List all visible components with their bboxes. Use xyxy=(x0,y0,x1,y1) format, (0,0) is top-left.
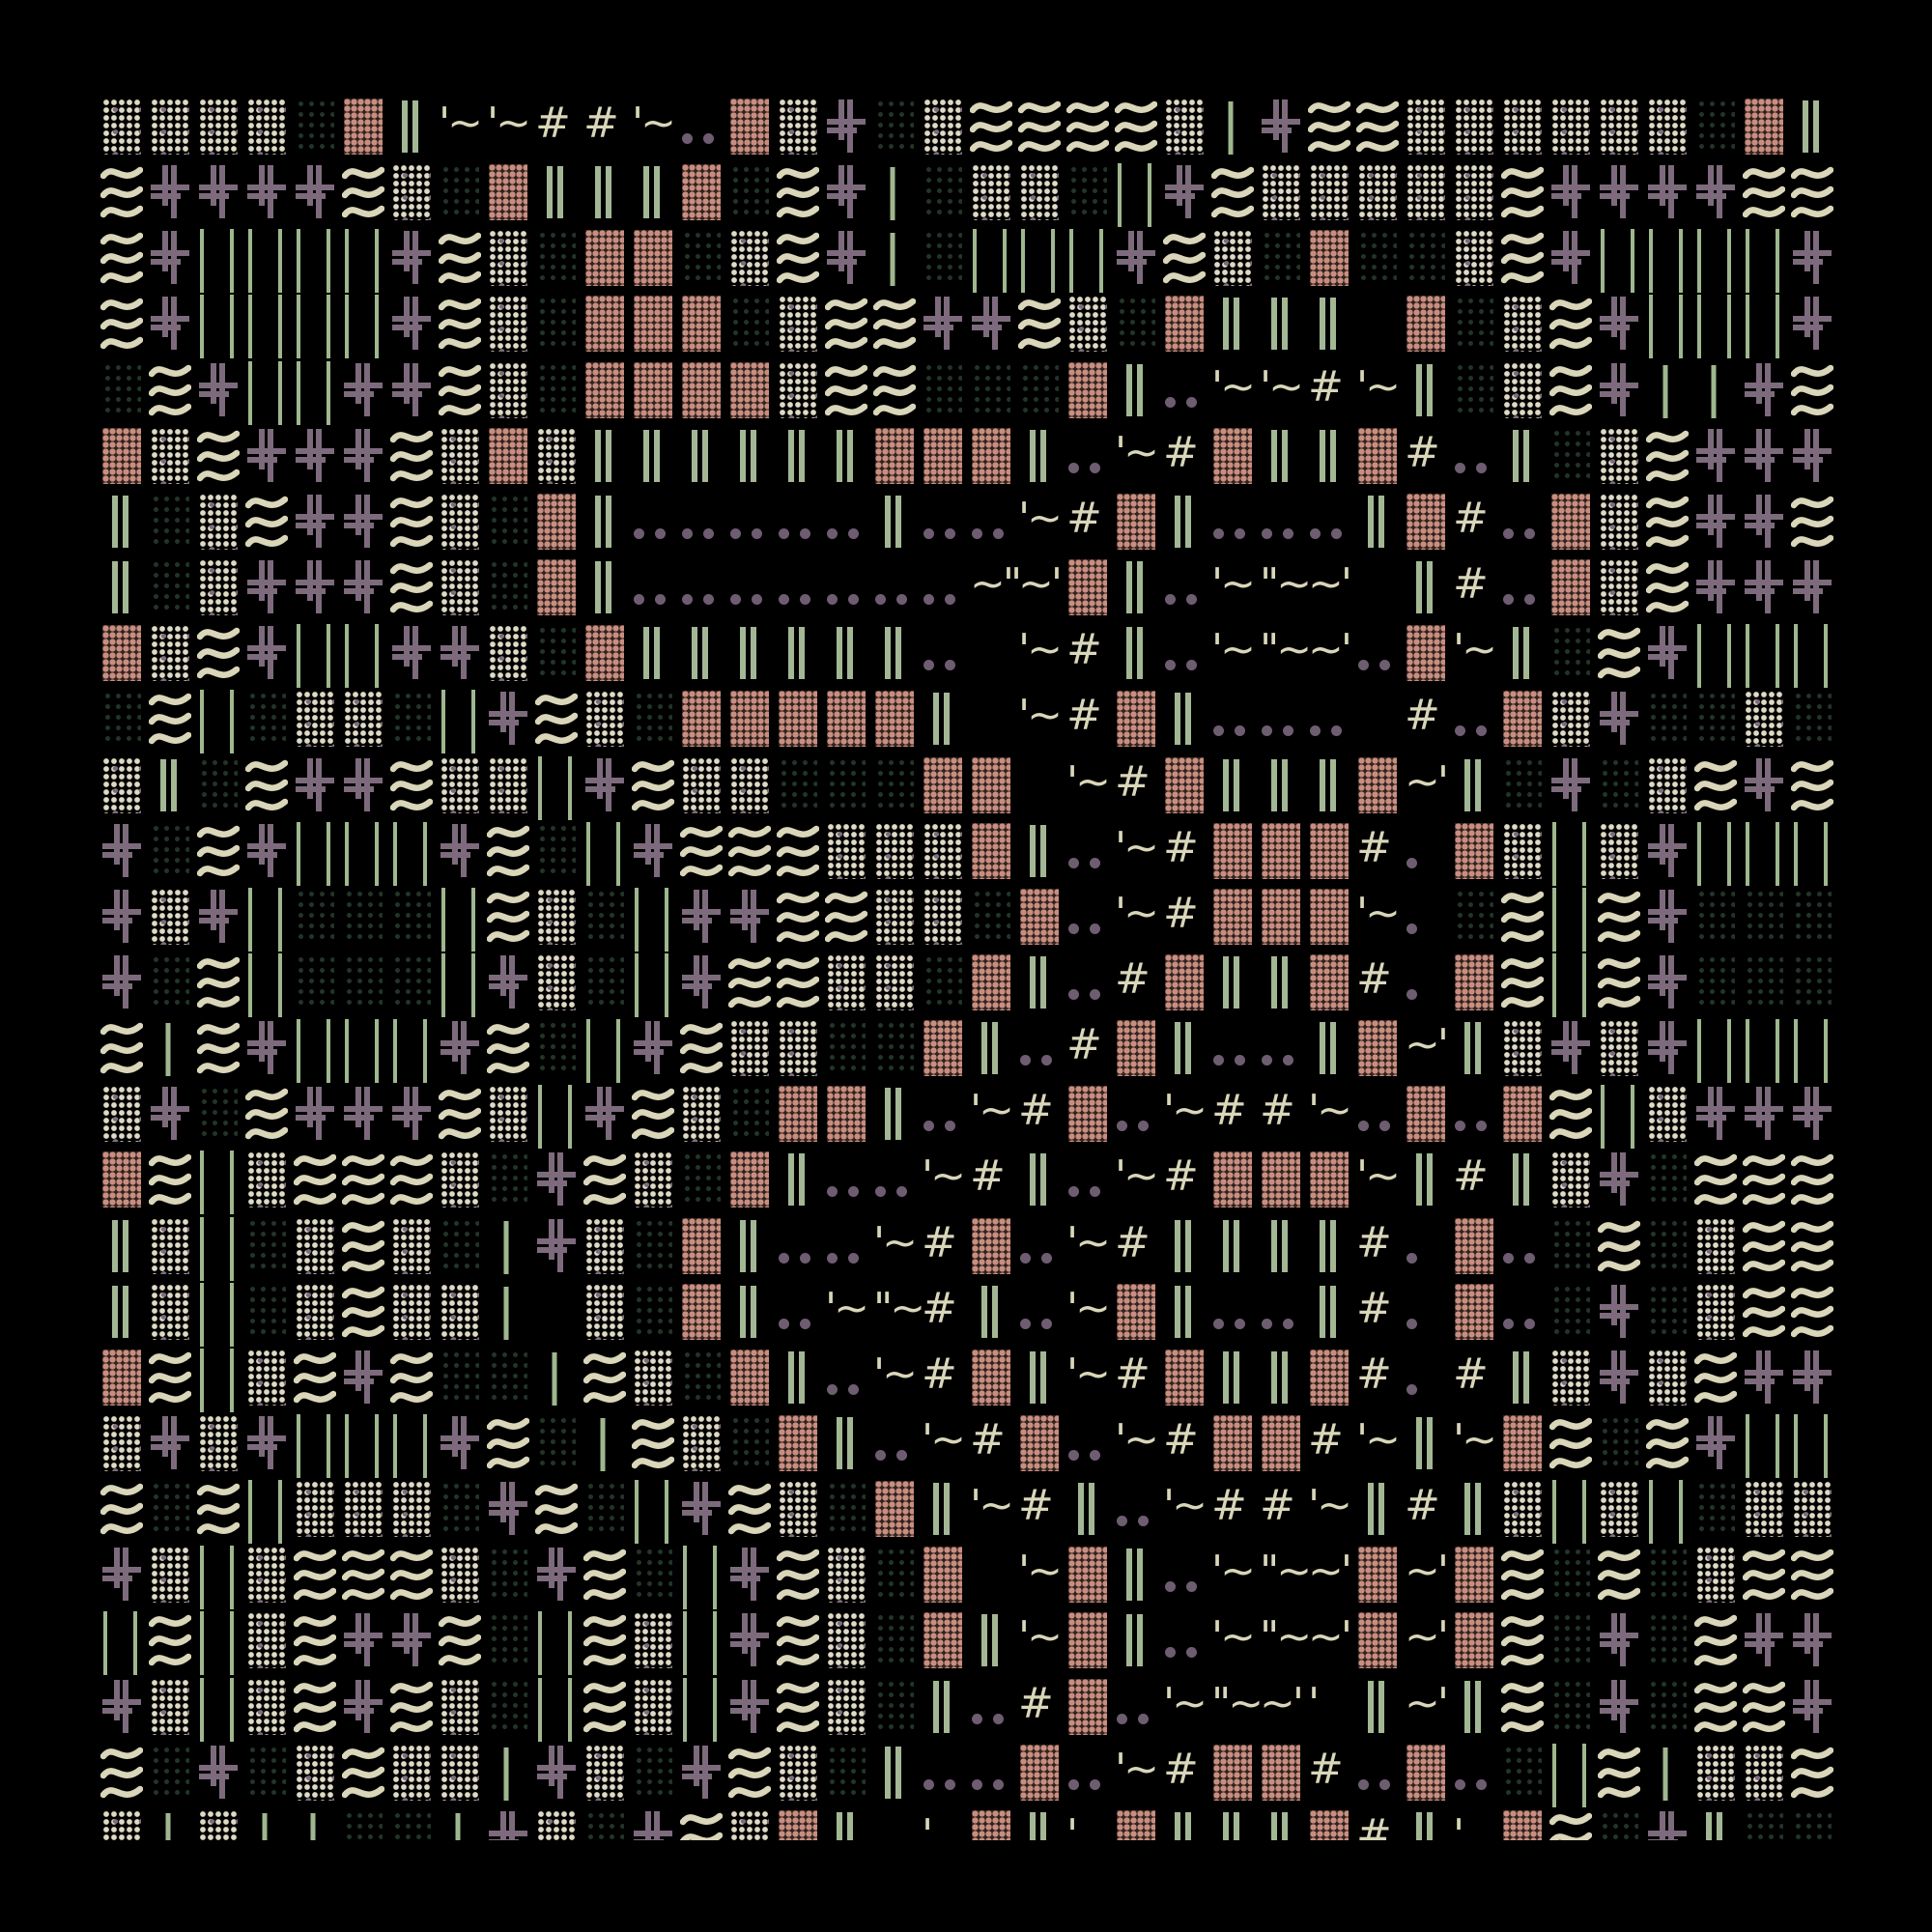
double-cross-glyph xyxy=(728,1610,771,1670)
mauve-dot-pair xyxy=(1260,492,1302,552)
thin-bar-pair-icon xyxy=(342,1413,384,1479)
double-bar-icon xyxy=(1453,755,1495,815)
dot-block-icon xyxy=(537,362,576,418)
glyph-text: # xyxy=(1211,1481,1244,1530)
triple-wave-glyph xyxy=(149,1610,191,1670)
thin-bar-pair-icon xyxy=(1646,228,1689,294)
glyph-text: '~ xyxy=(1066,757,1108,807)
pink-dotted-block xyxy=(1308,887,1350,947)
triple-wave-glyph xyxy=(390,1150,433,1209)
text-glyph-run: '~ xyxy=(632,97,674,156)
dot-block-icon xyxy=(682,230,721,286)
dot-block-icon xyxy=(102,757,141,813)
tall-thin-bar-pair xyxy=(1598,228,1640,288)
double-bar-glyph xyxy=(1308,426,1350,486)
cream-dotted-block xyxy=(439,1743,481,1803)
mauve-dot-pair xyxy=(1018,1216,1061,1276)
text-glyph-run: '~ xyxy=(1115,887,1157,947)
triple-wave-glyph xyxy=(1549,294,1592,354)
dot-block-icon xyxy=(102,625,141,681)
triple-wave-glyph xyxy=(1018,97,1061,156)
double-bar-icon xyxy=(583,162,626,222)
double-cross-glyph xyxy=(583,1084,626,1144)
triple-wave-glyph xyxy=(825,887,867,947)
cream-dotted-block xyxy=(1405,162,1447,222)
text-glyph-run: '~ xyxy=(1018,1610,1061,1670)
single-bar-glyph xyxy=(1694,360,1737,420)
double-bar-icon xyxy=(1260,426,1302,486)
pink-dotted-block xyxy=(970,821,1012,881)
tall-thin-bar-pair xyxy=(1646,294,1689,354)
dot-block-icon xyxy=(247,1284,286,1340)
double-cross-glyph xyxy=(100,1677,143,1737)
wave-icon xyxy=(149,1150,191,1209)
double-cross-glyph xyxy=(294,492,336,552)
wave-icon xyxy=(342,1150,384,1209)
double-bar-icon xyxy=(583,557,626,617)
glyph-text: '~ xyxy=(970,1086,1011,1135)
double-bar-glyph xyxy=(825,1413,867,1473)
dot-block-icon xyxy=(1068,1612,1107,1668)
forest-dotted-block xyxy=(487,1610,529,1670)
thin-bar-pair-icon xyxy=(1549,887,1592,952)
double-bar-icon xyxy=(1163,492,1206,552)
dots-icon xyxy=(1068,989,1109,1000)
text-glyph-run: '~ xyxy=(1356,360,1399,420)
cross-icon xyxy=(1791,1610,1833,1670)
wave-icon xyxy=(777,821,819,881)
text-glyph-run: "~ xyxy=(1260,623,1302,683)
cross-icon xyxy=(1743,557,1785,617)
dot-block-icon xyxy=(440,1284,479,1340)
dot-block-icon xyxy=(1406,230,1445,286)
double-bar-icon xyxy=(1211,294,1254,354)
pink-dotted-block xyxy=(1018,887,1061,947)
dot-block-icon xyxy=(1551,1218,1590,1274)
cream-dotted-block xyxy=(390,1216,433,1276)
dot-block-icon xyxy=(489,296,527,352)
double-cross-glyph xyxy=(1646,623,1689,683)
pink-dotted-block xyxy=(1405,492,1447,552)
dot-block-icon xyxy=(247,99,286,155)
dot-block-icon xyxy=(392,1745,431,1801)
triple-wave-glyph xyxy=(1211,162,1254,222)
glyph-text: # xyxy=(922,1284,954,1333)
pink-dotted-block xyxy=(1308,1808,1350,1840)
mauve-dot-pair xyxy=(1453,689,1495,749)
wave-icon xyxy=(197,426,240,486)
dot-block-icon xyxy=(682,362,721,418)
triple-wave-glyph xyxy=(777,1545,819,1605)
cream-dotted-block xyxy=(1549,1150,1592,1209)
double-bar-glyph xyxy=(1260,1348,1302,1407)
cream-dotted-block xyxy=(970,162,1012,222)
glyph-text: '~ xyxy=(1211,362,1253,412)
dots-icon xyxy=(1503,1319,1544,1329)
mauve-dot-pair xyxy=(922,492,964,552)
triple-wave-glyph xyxy=(100,1479,143,1539)
cross-icon xyxy=(1646,821,1689,881)
dot-block-icon xyxy=(779,757,817,813)
dot-block-icon xyxy=(489,1350,527,1406)
wave-icon xyxy=(439,228,481,288)
text-glyph-run: '~ xyxy=(1115,1150,1157,1209)
glyph-text: # xyxy=(1163,1745,1196,1794)
thin-bar-pair-icon xyxy=(1791,623,1833,689)
dot-block-icon xyxy=(1551,1679,1590,1735)
pink-dotted-block xyxy=(1453,1610,1495,1670)
wave-icon xyxy=(1549,1413,1592,1473)
dot-block-icon xyxy=(682,1350,721,1406)
double-bar-glyph xyxy=(922,689,964,749)
forest-dotted-block xyxy=(1646,1610,1689,1670)
dot-block-icon xyxy=(1503,296,1542,352)
double-bar-icon xyxy=(1501,623,1544,683)
glyph-text: # xyxy=(1115,954,1148,1004)
mauve-dot-pair xyxy=(825,557,867,617)
text-glyph-run: '~ xyxy=(1308,1084,1350,1144)
glyph-text: '~ xyxy=(1115,428,1156,477)
forest-dotted-block xyxy=(1694,952,1737,1012)
dots-icon xyxy=(730,594,771,605)
cream-dotted-block xyxy=(1743,1479,1785,1539)
double-bar-glyph xyxy=(1115,1610,1157,1670)
dot-block-icon xyxy=(1551,1284,1590,1340)
wave-icon xyxy=(1743,1282,1785,1342)
double-bar-glyph xyxy=(100,557,143,617)
cream-dotted-block xyxy=(197,492,240,552)
cream-dotted-block xyxy=(100,1808,143,1840)
dot-block-icon xyxy=(585,625,624,681)
cream-dotted-block xyxy=(294,689,336,749)
double-bar-glyph xyxy=(583,162,626,222)
tall-thin-bar-pair xyxy=(197,1677,240,1737)
mauve-dot-pair xyxy=(825,492,867,552)
text-glyph-run: '~ xyxy=(922,1150,964,1209)
dot-block-icon xyxy=(247,1350,286,1406)
tall-thin-bar-pair xyxy=(390,1413,433,1473)
cross-icon xyxy=(487,1479,529,1539)
triple-wave-glyph xyxy=(197,952,240,1012)
cream-dotted-block xyxy=(583,689,626,749)
dot-block-icon xyxy=(634,1745,672,1801)
dot-block-icon xyxy=(489,1679,527,1735)
glyph-text: '~ xyxy=(1260,362,1301,412)
glyph-text: # xyxy=(1308,1415,1341,1464)
tall-thin-bar-pair xyxy=(1549,821,1592,881)
dot-block-icon xyxy=(1696,99,1735,155)
text-glyph-run: '~ xyxy=(1211,1610,1254,1670)
pink-dotted-block xyxy=(1066,1545,1109,1605)
dot-block-icon xyxy=(779,1020,817,1076)
mauve-dot-pair xyxy=(970,492,1012,552)
dot-block-icon xyxy=(1648,1284,1687,1340)
thin-bar-pair-icon xyxy=(1743,1018,1785,1084)
cream-dotted-block xyxy=(390,1282,433,1342)
dots-icon xyxy=(1406,1319,1447,1329)
dot-block-icon xyxy=(102,99,141,155)
double-cross-glyph xyxy=(1646,162,1689,222)
text-glyph-run: '~ xyxy=(1260,360,1302,420)
glyph-text: ~' xyxy=(1260,1679,1301,1728)
text-glyph-run: # xyxy=(1163,1743,1206,1803)
mauve-dot-pair xyxy=(1211,1282,1254,1342)
cross-icon xyxy=(342,360,384,420)
triple-wave-glyph xyxy=(583,1610,626,1670)
glyph-text: # xyxy=(1405,1481,1437,1530)
dot-block-icon xyxy=(1455,1284,1493,1340)
dot-block-icon xyxy=(1358,1020,1397,1076)
forest-dotted-block xyxy=(1453,887,1495,947)
thin-bar-pair-icon xyxy=(390,1018,433,1084)
forest-dotted-block xyxy=(1066,162,1109,222)
thin-bar-pair-icon xyxy=(439,952,481,1018)
forest-dotted-block xyxy=(583,952,626,1012)
pink-dotted-block xyxy=(825,689,867,749)
triple-wave-glyph xyxy=(1743,1677,1785,1737)
forest-dotted-block xyxy=(1260,228,1302,288)
cross-icon xyxy=(825,162,867,222)
cross-icon xyxy=(342,426,384,486)
dots-icon xyxy=(1503,528,1544,539)
pink-dotted-block xyxy=(1308,228,1350,288)
dot-block-icon xyxy=(730,230,769,286)
cream-dotted-block xyxy=(1501,1018,1544,1078)
triple-wave-glyph xyxy=(1646,426,1689,486)
pink-dotted-block xyxy=(1018,1413,1061,1473)
double-bar-glyph xyxy=(1163,492,1206,552)
cream-dotted-block xyxy=(1453,97,1495,156)
triple-wave-glyph xyxy=(390,492,433,552)
pink-dotted-block xyxy=(1405,1084,1447,1144)
text-glyph-run: "~ xyxy=(873,1282,916,1342)
dot-block-icon xyxy=(1165,1350,1204,1406)
pink-dotted-block xyxy=(100,623,143,683)
dot-block-icon xyxy=(779,1745,817,1801)
dot-block-icon xyxy=(1406,164,1445,220)
dots-icon xyxy=(827,528,867,539)
mauve-dot-pair xyxy=(922,623,964,683)
dot-block-icon xyxy=(1165,296,1204,352)
thin-bar-pair-icon xyxy=(439,887,481,952)
wave-icon xyxy=(680,1808,723,1840)
double-cross-glyph xyxy=(1549,162,1592,222)
cross-icon xyxy=(100,887,143,947)
text-glyph-run: # xyxy=(1115,952,1157,1012)
pink-dotted-block xyxy=(1501,1413,1544,1473)
forest-dotted-block xyxy=(1018,360,1061,420)
wave-icon xyxy=(1501,1545,1544,1605)
text-glyph-run: "~ xyxy=(1260,1545,1302,1605)
double-cross-glyph xyxy=(1791,1084,1833,1144)
mauve-dot-pair xyxy=(1501,1282,1544,1342)
triple-wave-glyph xyxy=(1501,162,1544,222)
double-bar-icon xyxy=(777,623,819,683)
double-cross-glyph xyxy=(294,557,336,617)
thin-bar-pair-icon xyxy=(632,952,674,1018)
forest-dotted-block xyxy=(922,228,964,288)
wave-icon xyxy=(100,228,143,288)
double-bar-glyph xyxy=(149,755,191,815)
wave-icon xyxy=(390,557,433,617)
mauve-dot-pair xyxy=(1356,1743,1399,1803)
tall-thin-bar-pair xyxy=(342,1413,384,1473)
triple-wave-glyph xyxy=(1791,1282,1833,1342)
dot-block-icon xyxy=(102,1415,141,1471)
double-bar-glyph xyxy=(1501,1348,1544,1407)
text-glyph-run: # xyxy=(1066,689,1109,749)
cross-icon xyxy=(390,360,433,420)
cream-dotted-block xyxy=(1501,360,1544,420)
thin-bar-pair-icon xyxy=(1743,228,1785,294)
glyph-text: # xyxy=(1115,757,1148,807)
dots-icon xyxy=(923,594,964,605)
tall-thin-bar-pair xyxy=(1694,623,1737,683)
cross-icon xyxy=(390,294,433,354)
forest-dotted-block xyxy=(825,1743,867,1803)
dot-block-icon xyxy=(1793,691,1832,747)
cross-icon xyxy=(970,294,1012,354)
triple-wave-glyph xyxy=(583,1150,626,1209)
dot-block-icon xyxy=(730,1020,769,1076)
cross-icon xyxy=(825,228,867,288)
triple-wave-glyph xyxy=(1501,1677,1544,1737)
triple-wave-glyph xyxy=(777,887,819,947)
double-cross-glyph xyxy=(1791,1610,1833,1670)
cream-dotted-block xyxy=(873,952,916,1012)
tall-thin-bar-pair xyxy=(245,294,288,354)
pink-dotted-block xyxy=(1211,887,1254,947)
cross-icon xyxy=(535,1150,578,1209)
thin-bar-pair-icon xyxy=(1115,162,1157,228)
triple-wave-glyph xyxy=(1694,1150,1737,1209)
thin-bar-pair-icon xyxy=(245,360,288,426)
double-cross-glyph xyxy=(100,952,143,1012)
mauve-dot-pair xyxy=(1163,557,1206,617)
tall-thin-bar-pair xyxy=(197,228,240,288)
double-bar-icon xyxy=(1453,1018,1495,1078)
forest-dotted-block xyxy=(1356,228,1399,288)
double-cross-glyph xyxy=(439,623,481,683)
dots-icon xyxy=(1068,1779,1109,1790)
dot-block-icon xyxy=(1648,757,1687,813)
double-bar-icon xyxy=(728,623,771,683)
mauve-dot-pair xyxy=(1356,1084,1399,1144)
glyph-text: '~ xyxy=(1018,1547,1060,1596)
dot-block-icon xyxy=(634,1284,672,1340)
cream-dotted-block xyxy=(1694,1545,1737,1605)
mauve-dot-pair xyxy=(1453,1084,1495,1144)
double-bar-icon xyxy=(1018,952,1061,1012)
double-bar-glyph xyxy=(680,426,723,486)
dot-block-icon xyxy=(247,1218,286,1274)
wave-icon xyxy=(245,1084,288,1144)
pink-dotted-block xyxy=(1115,1808,1157,1840)
dot-block-icon xyxy=(1745,99,1783,155)
text-glyph-run: # xyxy=(1453,492,1495,552)
double-bar-icon xyxy=(100,1216,143,1276)
cross-icon xyxy=(245,821,288,881)
double-bar-icon xyxy=(583,492,626,552)
pink-dotted-block xyxy=(873,689,916,749)
double-bar-icon xyxy=(728,1282,771,1342)
dot-block-icon xyxy=(151,625,189,681)
dot-block-icon xyxy=(730,99,769,155)
double-bar-glyph xyxy=(922,1479,964,1539)
cross-icon xyxy=(439,1413,481,1473)
double-bar-icon xyxy=(777,426,819,486)
dots-icon xyxy=(875,1450,916,1461)
dot-block-icon xyxy=(1793,1810,1832,1840)
tall-thin-bar-pair xyxy=(342,821,384,881)
forest-dotted-block xyxy=(1598,1808,1640,1840)
forest-dotted-block xyxy=(245,689,288,749)
dot-block-icon xyxy=(102,1810,141,1840)
tall-thin-bar-pair xyxy=(197,689,240,749)
forest-dotted-block xyxy=(1694,1479,1737,1539)
dots-icon xyxy=(875,594,916,605)
double-bar-glyph xyxy=(100,1282,143,1342)
cross-icon xyxy=(1791,1348,1833,1407)
dot-block-icon xyxy=(247,1547,286,1603)
forest-dotted-block xyxy=(342,952,384,1012)
forest-dotted-block xyxy=(535,623,578,683)
cream-dotted-block xyxy=(680,755,723,815)
wave-icon xyxy=(1598,1743,1640,1803)
triple-wave-glyph xyxy=(439,360,481,420)
tall-thin-bar-pair xyxy=(1791,623,1833,683)
single-bar-icon xyxy=(487,1743,529,1803)
forest-dotted-block xyxy=(970,360,1012,420)
triple-wave-glyph xyxy=(1646,1413,1689,1473)
forest-dotted-block xyxy=(294,887,336,947)
forest-dotted-block xyxy=(1791,952,1833,1012)
thin-bar-pair-icon xyxy=(294,1018,336,1084)
double-cross-glyph xyxy=(1260,97,1302,156)
double-cross-glyph xyxy=(1743,1348,1785,1407)
dots-icon xyxy=(923,528,964,539)
triple-wave-glyph xyxy=(245,492,288,552)
single-bar-icon xyxy=(487,1282,529,1342)
dot-block-icon xyxy=(344,691,383,747)
single-bar-icon xyxy=(873,162,916,222)
text-glyph-run: # xyxy=(1018,1084,1061,1144)
cross-icon xyxy=(342,755,384,815)
mauve-dot-pair xyxy=(1501,492,1544,552)
cross-icon xyxy=(680,1743,723,1803)
tall-thin-bar-pair xyxy=(197,1150,240,1209)
double-cross-glyph xyxy=(1791,557,1833,617)
mauve-dot-pair xyxy=(1115,1677,1157,1737)
dot-block-icon xyxy=(1696,1284,1735,1340)
triple-wave-glyph xyxy=(294,1150,336,1209)
triple-wave-glyph xyxy=(1598,623,1640,683)
wave-icon xyxy=(100,294,143,354)
cream-dotted-block xyxy=(197,557,240,617)
dot-block-icon xyxy=(296,691,334,747)
dot-block-icon xyxy=(875,823,914,879)
cross-icon xyxy=(294,755,336,815)
double-bar-icon xyxy=(535,162,578,222)
double-bar-glyph xyxy=(1405,557,1447,617)
dot-block-icon xyxy=(1503,757,1542,813)
forest-dotted-block xyxy=(535,228,578,288)
dot-block-icon xyxy=(344,889,383,945)
cross-icon xyxy=(487,952,529,1012)
double-bar-icon xyxy=(632,426,674,486)
wave-icon xyxy=(1791,1545,1833,1605)
triple-wave-glyph xyxy=(777,228,819,288)
